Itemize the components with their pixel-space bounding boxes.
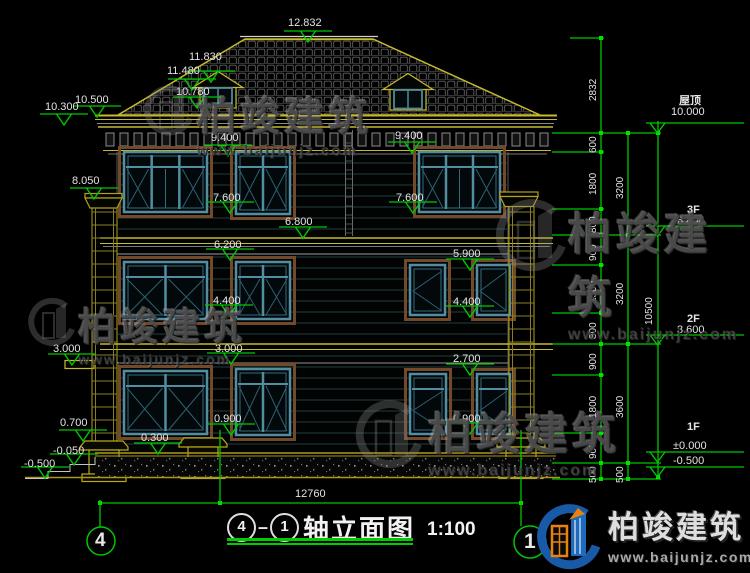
axis-number-4: 4 xyxy=(95,530,106,552)
dim-value: 1500 xyxy=(589,281,599,303)
dim-value: 600 xyxy=(589,136,599,153)
level-value: -0.500 xyxy=(673,455,704,467)
elevation-mark: 7.600 xyxy=(213,192,241,204)
elevation-mark: 4.400 xyxy=(453,296,481,308)
dim-value: 1800 xyxy=(589,173,599,195)
elevation-mark: 3.000 xyxy=(215,343,243,355)
dim-value: 3600 xyxy=(616,396,626,418)
elevation-mark: -0.500 xyxy=(24,458,55,470)
level-value: ±0.000 xyxy=(673,440,707,452)
dim-value: 900 xyxy=(589,353,599,370)
dim-value: 800 xyxy=(589,216,599,233)
title-underline xyxy=(227,538,413,541)
window xyxy=(473,370,515,439)
dim-value: 900 xyxy=(589,244,599,261)
elevation-mark: 0.300 xyxy=(141,432,169,444)
window xyxy=(473,261,515,320)
elevation-mark: 11.830 xyxy=(189,51,222,63)
dim-value: 900 xyxy=(589,442,599,459)
elevation-mark: 11.480 xyxy=(167,65,200,77)
elevation-mark: 2.700 xyxy=(453,353,481,365)
elevation-drawing xyxy=(0,0,750,573)
window xyxy=(232,148,295,219)
elevation-mark: 3.000 xyxy=(53,343,81,355)
elevation-mark: 8.050 xyxy=(72,175,100,187)
window xyxy=(120,258,212,324)
brand-logo-text: 柏竣建筑 xyxy=(608,502,750,547)
elevation-mark: -0.050 xyxy=(53,445,84,457)
window xyxy=(232,258,295,324)
window xyxy=(120,367,212,439)
level-value: 10.000 xyxy=(671,106,705,118)
dim-value: 2832 xyxy=(589,79,599,101)
level-value: 3.600 xyxy=(677,324,705,336)
brand-logo-icon xyxy=(528,502,602,572)
window xyxy=(406,261,450,320)
elevation-sheet: 12.832 11.830 11.480 10.780 10.500 10.30… xyxy=(0,0,750,573)
elevation-mark: 0.700 xyxy=(60,417,88,429)
elevation-mark: 9.400 xyxy=(395,130,423,142)
window xyxy=(406,370,451,439)
elevation-mark: 10.500 xyxy=(75,94,109,106)
dim-value: 500 xyxy=(616,466,626,483)
title-scale: 1:100 xyxy=(427,514,476,541)
level-value: 6.800 xyxy=(677,215,705,227)
elevation-mark: 0.900 xyxy=(214,413,242,425)
window xyxy=(120,148,212,217)
dim-value: 500 xyxy=(589,466,599,483)
dim-value: 1800 xyxy=(589,396,599,418)
window xyxy=(232,365,295,440)
elevation-mark: 9.400 xyxy=(211,132,239,144)
elevation-mark: 10.780 xyxy=(176,86,210,98)
brand-logo: 柏竣建筑 www.baijunjz.com xyxy=(528,502,750,572)
dim-value: 3200 xyxy=(616,177,626,199)
overall-dim: 12760 xyxy=(295,488,326,500)
level-name: 1F xyxy=(687,421,700,433)
elevation-mark: 5.900 xyxy=(453,248,481,260)
title-dash: – xyxy=(258,517,268,538)
brand-logo-url: www.baijunjz.com xyxy=(608,549,750,565)
elevation-mark: 4.400 xyxy=(213,295,241,307)
dim-value: 3200 xyxy=(616,283,626,305)
elevation-mark: 6.200 xyxy=(214,239,242,251)
title-underline xyxy=(227,543,413,545)
elevation-mark: 7.600 xyxy=(396,192,424,204)
elevation-mark: 10.300 xyxy=(45,101,79,113)
dim-value: 10500 xyxy=(645,297,655,325)
elevation-mark: 12.832 xyxy=(288,17,322,29)
window xyxy=(415,148,505,217)
pilaster-left xyxy=(85,194,122,442)
elevation-mark: 0.900 xyxy=(453,413,481,425)
dim-value: 800 xyxy=(589,322,599,339)
elevation-mark: 6.800 xyxy=(285,216,313,228)
